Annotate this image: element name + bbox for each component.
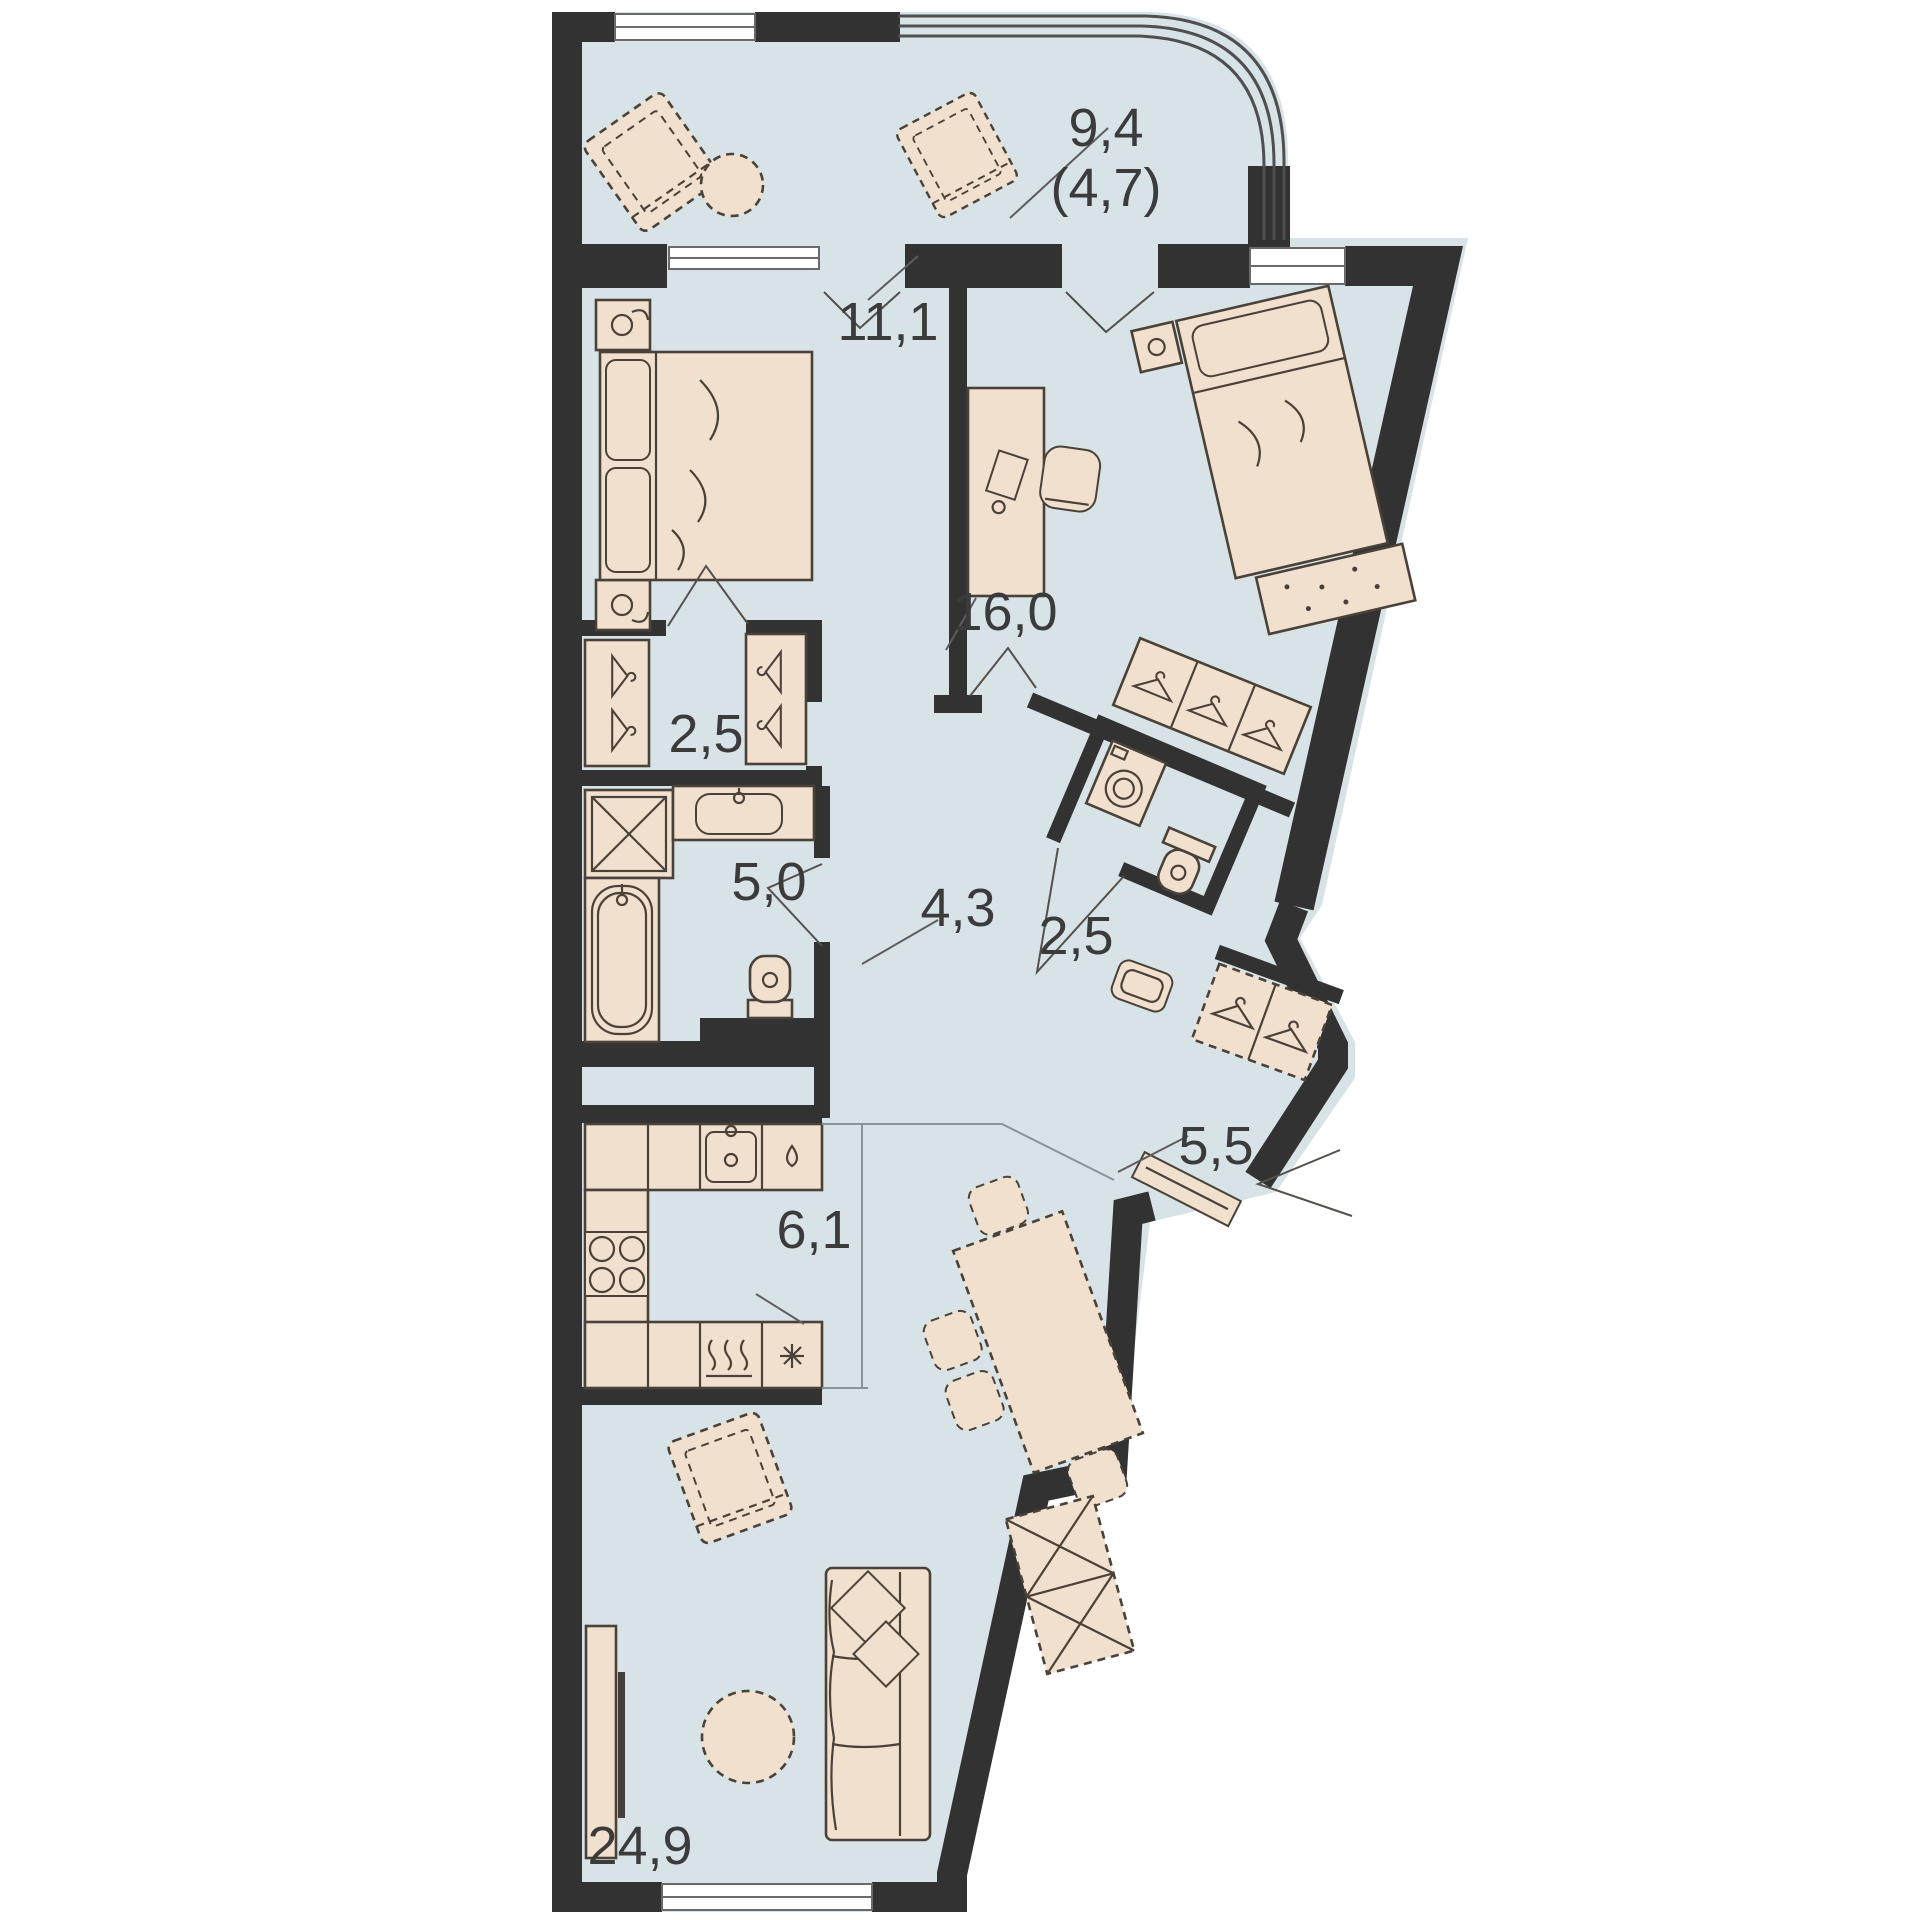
closet-cabinet-right: [746, 634, 806, 764]
label-bathroom: 5,0: [731, 852, 806, 912]
sofa: [826, 1568, 930, 1840]
label-hallway: 4,3: [920, 878, 995, 938]
kitchen-stove: [585, 1232, 648, 1296]
floor-plan-page: 9,4 (4,7) 11,1 16,0 2,5 5,0 4,3 2,5 5,5 …: [0, 0, 1920, 1920]
nightstand-2: [596, 580, 650, 630]
label-bedroom2: 16,0: [952, 582, 1057, 642]
floor-plan-svg: 9,4 (4,7) 11,1 16,0 2,5 5,0 4,3 2,5 5,5 …: [0, 0, 1920, 1920]
closet-cabinet-left: [585, 640, 649, 766]
nightstand-1: [596, 300, 650, 350]
label-kitchen: 6,1: [776, 1200, 851, 1260]
label-balcony-area-secondary: (4,7): [1050, 158, 1161, 218]
wall-toilet-ledge: [700, 1018, 816, 1044]
label-wc: 2,5: [1038, 906, 1113, 966]
shelving-unit: [1006, 1496, 1134, 1674]
toilet-bathroom: [748, 956, 792, 1018]
label-bedroom1: 11,1: [837, 292, 938, 352]
coffee-table: [702, 1691, 794, 1783]
label-closet: 2,5: [668, 704, 743, 764]
bedroom2-nightstand: [1131, 322, 1181, 372]
bathtub: [585, 878, 659, 1042]
label-living-room: 24,9: [587, 1816, 692, 1876]
shower: [585, 790, 673, 878]
bedroom2-desk-chair: [1038, 444, 1102, 513]
label-entrance-hall: 5,5: [1178, 1116, 1253, 1176]
bathroom-sink: [673, 786, 814, 840]
label-balcony-area: 9,4: [1068, 98, 1143, 158]
balcony-table: [701, 154, 763, 216]
double-bed: [600, 352, 812, 580]
